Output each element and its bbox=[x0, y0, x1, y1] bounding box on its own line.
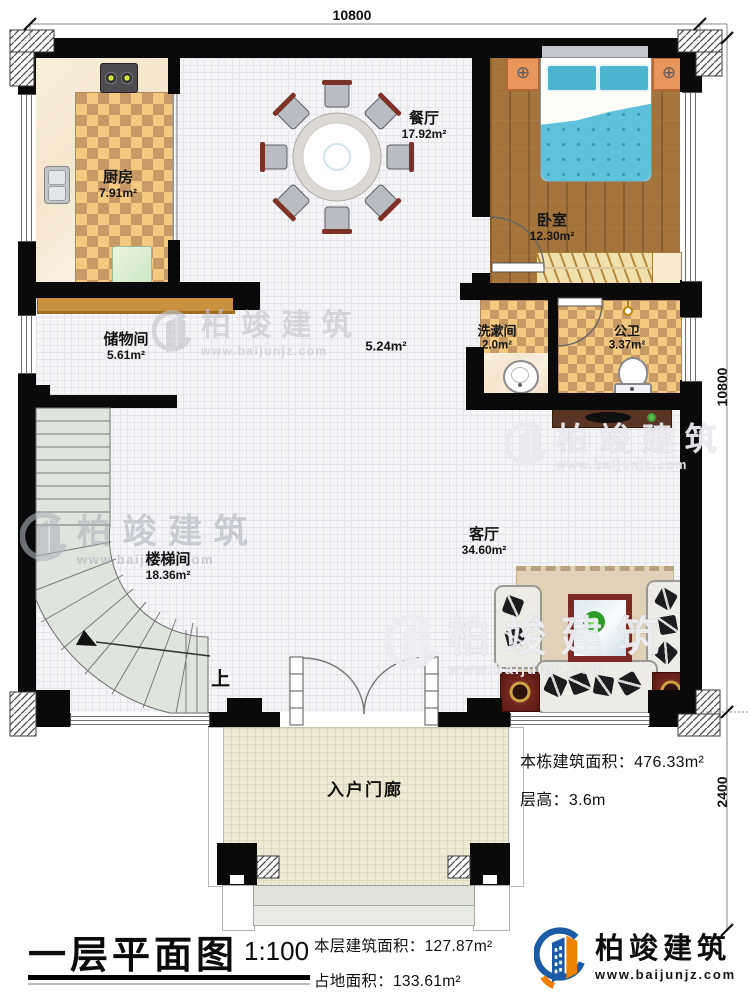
washbasin-bowl bbox=[511, 367, 529, 383]
stat-floor-area: 本层建筑面积：127.87m² bbox=[314, 934, 493, 956]
cushion bbox=[658, 615, 679, 636]
table-medallion bbox=[510, 682, 531, 703]
sofa-left bbox=[494, 585, 542, 669]
nightstand: ⊕ bbox=[506, 57, 540, 91]
wall-right bbox=[680, 380, 702, 712]
room-label-living: 客厅 34.60m² bbox=[462, 527, 507, 557]
wall-bottom-pier bbox=[227, 698, 262, 712]
washbasin-tap bbox=[518, 383, 522, 387]
bed bbox=[540, 57, 652, 182]
window bbox=[18, 94, 36, 242]
stat-building-total: 本栋建筑面积：476.33m² bbox=[520, 748, 704, 772]
company-logo-icon bbox=[534, 924, 588, 992]
room-label-toilet: 公卫 3.37m² bbox=[609, 324, 645, 351]
window bbox=[510, 713, 650, 726]
dimension-porch: 2400 bbox=[714, 776, 730, 807]
dimension-top: 10800 bbox=[333, 7, 372, 23]
porch-column bbox=[470, 843, 510, 885]
company-name: 柏竣建筑 bbox=[595, 934, 736, 964]
side-table bbox=[500, 672, 540, 712]
wardrobe-shelf bbox=[652, 252, 682, 284]
wardrobe bbox=[536, 252, 654, 284]
wall-left bbox=[18, 372, 36, 692]
tv-cabinet bbox=[552, 408, 672, 428]
wall-storage-bottom bbox=[30, 395, 177, 408]
burner-icon bbox=[121, 72, 133, 84]
column-notch bbox=[230, 875, 244, 884]
plant-icon bbox=[583, 611, 605, 633]
room-label-bedroom: 卧室 12.30m² bbox=[530, 213, 575, 243]
stat-footprint: 占地面积：133.61m² bbox=[314, 969, 461, 991]
cushion bbox=[592, 674, 614, 696]
room-label-washroom: 洗漱间 2.0m² bbox=[477, 324, 516, 351]
cushion bbox=[653, 640, 678, 665]
wall-storage-top bbox=[30, 282, 260, 298]
window bbox=[682, 317, 702, 382]
wardrobe-rail bbox=[537, 267, 653, 269]
cushion bbox=[567, 671, 591, 695]
cushion bbox=[617, 671, 643, 697]
tv-icon bbox=[585, 412, 631, 423]
porch-column bbox=[217, 843, 257, 885]
kitchen-sink bbox=[44, 166, 70, 204]
stat-floor-height: 层高：3.6m bbox=[520, 786, 606, 810]
drawing-scale: 1:100 bbox=[244, 936, 309, 967]
porch-step bbox=[253, 905, 475, 926]
room-label-storage: 储物间 5.61m² bbox=[103, 332, 148, 362]
window bbox=[18, 315, 36, 374]
wall-left bbox=[18, 38, 36, 94]
company-website: www.baijunjz.com bbox=[595, 967, 736, 982]
room-label-porch: 入户门廊 bbox=[327, 780, 403, 799]
wall-bedroom-left bbox=[472, 58, 490, 217]
title-underline-shadow bbox=[28, 983, 310, 985]
floor-plan-sheet: ⊕ ⊕ bbox=[0, 0, 750, 1004]
cushion bbox=[501, 594, 524, 617]
wall-left bbox=[18, 240, 36, 315]
wall-bottom-pier bbox=[438, 712, 510, 727]
porch-step bbox=[253, 885, 475, 907]
step-wing bbox=[473, 885, 510, 931]
window bbox=[682, 92, 702, 282]
wall-right bbox=[680, 280, 702, 317]
porch-floor bbox=[222, 727, 510, 887]
title-underline bbox=[28, 975, 310, 980]
cushion bbox=[543, 673, 568, 698]
wall-right bbox=[680, 38, 702, 92]
page-title: 一层平面图 bbox=[28, 924, 238, 979]
wall-kitchen bbox=[168, 58, 180, 94]
sofa-main bbox=[536, 660, 658, 714]
wall-bottom-pier bbox=[208, 712, 280, 727]
sink-basin bbox=[48, 186, 66, 201]
window bbox=[70, 713, 210, 726]
wall-washroom-left bbox=[466, 347, 484, 410]
wall-corner-bl bbox=[18, 690, 70, 727]
wall-bottom-pier bbox=[467, 698, 502, 712]
wall-kitchen bbox=[168, 240, 180, 283]
wall-washroom-divider bbox=[548, 293, 558, 393]
room-label-dining: 餐厅 17.92m² bbox=[402, 111, 447, 141]
room-label-corridor: 5.24m² bbox=[365, 340, 406, 355]
sink-basin bbox=[48, 170, 66, 185]
pillow bbox=[546, 64, 598, 92]
bedroom-window-sill bbox=[542, 46, 648, 58]
stove bbox=[100, 63, 138, 93]
wall-pier bbox=[233, 282, 260, 310]
company-logo: 柏竣建筑 www.baijunjz.com bbox=[534, 924, 736, 992]
room-label-kitchen: 厨房 7.91m² bbox=[99, 170, 137, 200]
wall-corner-br bbox=[648, 690, 700, 727]
washbasin bbox=[503, 360, 539, 394]
wall-bedroom-bottom bbox=[460, 283, 680, 300]
room-label-stairwell: 楼梯间 18.36m² bbox=[145, 552, 190, 582]
fridge bbox=[112, 246, 152, 284]
cushion bbox=[654, 587, 679, 612]
coffee-table bbox=[568, 594, 632, 662]
wall-washroom-bottom bbox=[484, 393, 680, 410]
burner-icon bbox=[105, 72, 117, 84]
cushion bbox=[504, 627, 526, 649]
flush-button bbox=[630, 387, 634, 391]
column-notch bbox=[483, 875, 497, 884]
storage-counter bbox=[37, 297, 235, 314]
wall-bedroom-left bbox=[472, 273, 490, 283]
dimension-right: 10800 bbox=[714, 368, 730, 407]
pillow bbox=[598, 64, 650, 92]
stairs-up-label: 上 bbox=[211, 664, 230, 691]
plant-icon bbox=[647, 413, 656, 422]
